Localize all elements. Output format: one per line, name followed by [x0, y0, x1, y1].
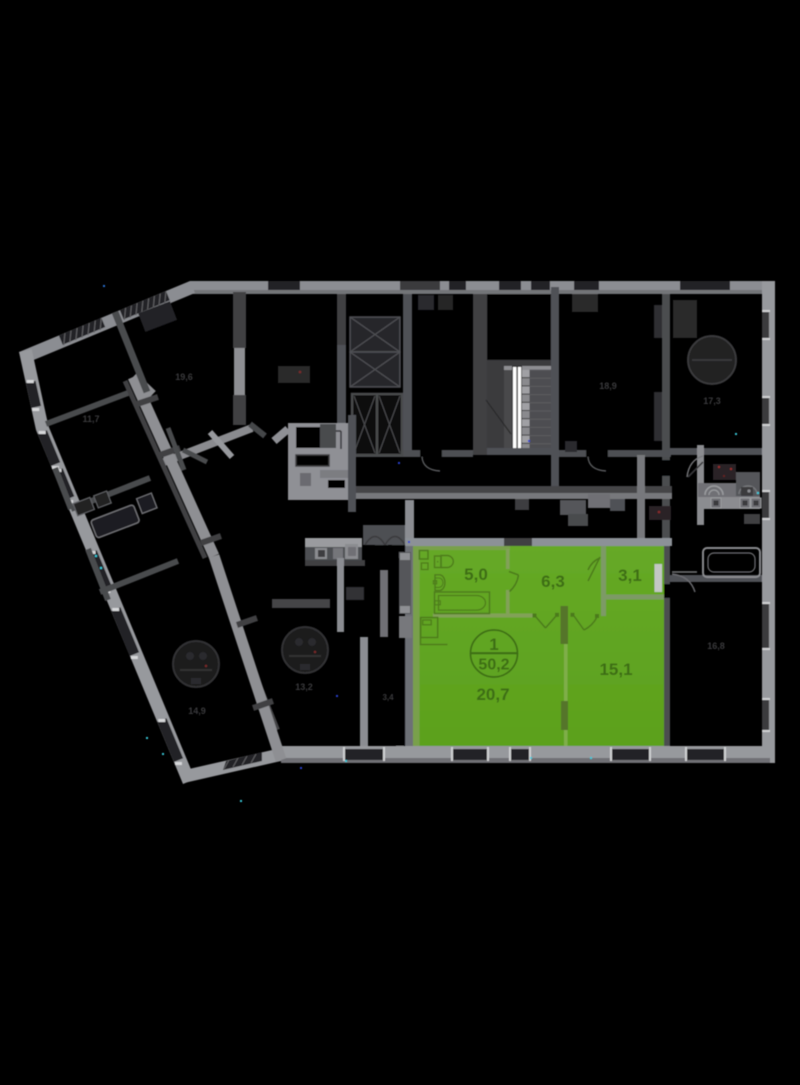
- svg-text:3,4: 3,4: [382, 693, 394, 702]
- svg-text:17,3: 17,3: [703, 396, 721, 406]
- svg-text:3,1: 3,1: [618, 566, 642, 585]
- svg-text:5,0: 5,0: [464, 565, 488, 584]
- svg-text:14,9: 14,9: [188, 706, 206, 716]
- svg-text:11,7: 11,7: [82, 414, 99, 424]
- svg-text:16,8: 16,8: [707, 641, 725, 651]
- svg-text:13,2: 13,2: [295, 682, 313, 692]
- svg-text:6,3: 6,3: [541, 572, 565, 591]
- svg-text:18,9: 18,9: [599, 381, 617, 391]
- svg-text:15,1: 15,1: [599, 660, 632, 679]
- svg-text:19,6: 19,6: [175, 372, 193, 382]
- svg-text:20,7: 20,7: [476, 685, 509, 704]
- svg-text:1: 1: [489, 635, 498, 654]
- svg-text:50,2: 50,2: [478, 657, 509, 674]
